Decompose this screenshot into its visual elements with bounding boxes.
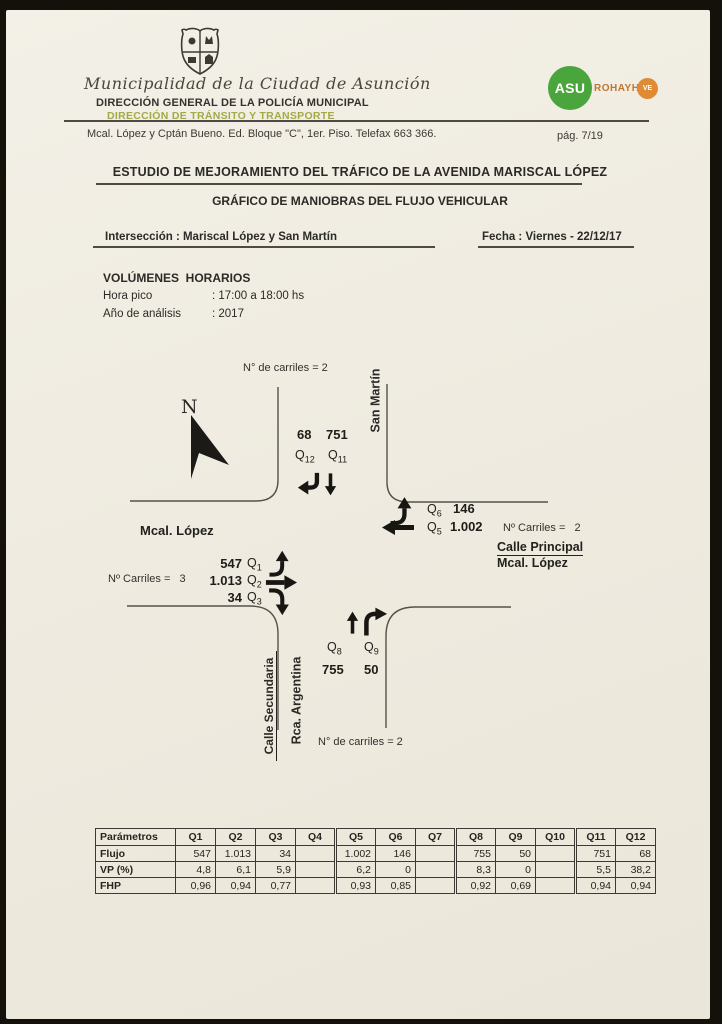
q8-subscript: 8 <box>337 647 342 657</box>
table-row-fhp: FHP 0,96 0,94 0,77 0,93 0,85 0,92 0,69 0… <box>96 878 656 894</box>
q9-letter: Q <box>364 640 374 654</box>
q11-straight-down-arrow-icon <box>322 467 339 501</box>
vp-q11: 5,5 <box>576 862 616 878</box>
col-q10: Q10 <box>536 829 576 846</box>
fhp-q7 <box>416 878 456 894</box>
flujo-q8: 755 <box>456 846 496 862</box>
col-q7: Q7 <box>416 829 456 846</box>
vp-q5: 6,2 <box>336 862 376 878</box>
vp-q2: 6,1 <box>216 862 256 878</box>
flujo-q10 <box>536 846 576 862</box>
q2-label: Q2 <box>247 573 262 590</box>
flujo-q5: 1.002 <box>336 846 376 862</box>
vp-q10 <box>536 862 576 878</box>
vp-q8: 8,3 <box>456 862 496 878</box>
q3-subscript: 3 <box>257 597 262 607</box>
col-q4: Q4 <box>296 829 336 846</box>
q1-value: 547 <box>190 556 242 571</box>
street-right-name: Calle Principal <box>497 540 583 556</box>
lanes-bottom-label: N° de carriles = 2 <box>318 736 403 748</box>
q1-turn-up-arrow-icon <box>267 550 291 577</box>
flujo-label: Flujo <box>96 846 176 862</box>
vp-q9: 0 <box>496 862 536 878</box>
flujo-q3: 34 <box>256 846 296 862</box>
q2-letter: Q <box>247 573 257 587</box>
north-arrow-icon <box>171 413 233 481</box>
fhp-q8: 0,92 <box>456 878 496 894</box>
vp-label: VP (%) <box>96 862 176 878</box>
q5-straight-left-arrow-icon <box>381 519 416 536</box>
col-q6: Q6 <box>376 829 416 846</box>
street-top-label: San Martín <box>368 362 383 440</box>
vp-q7 <box>416 862 456 878</box>
q1-letter: Q <box>247 556 257 570</box>
q9-turn-right-arrow-icon <box>361 606 388 638</box>
q6-letter: Q <box>427 502 437 516</box>
q9-label: Q9 <box>364 640 379 657</box>
col-q2: Q2 <box>216 829 256 846</box>
lanes-top-label: N° de carriles = 2 <box>243 362 328 374</box>
col-q12: Q12 <box>616 829 656 846</box>
q3-value: 34 <box>190 590 242 605</box>
col-parametros: Parámetros <box>96 829 176 846</box>
q11-letter: Q <box>328 448 338 462</box>
q11-subscript: 11 <box>338 455 347 465</box>
lanes-right-label: Nº Carriles = 2 <box>503 522 581 534</box>
q12-turn-left-arrow-icon <box>297 469 323 501</box>
col-q5: Q5 <box>336 829 376 846</box>
fhp-q5: 0,93 <box>336 878 376 894</box>
street-right-name2: Mcal. López <box>497 556 568 570</box>
col-q1: Q1 <box>176 829 216 846</box>
q3-letter: Q <box>247 590 257 604</box>
vp-q4 <box>296 862 336 878</box>
fhp-q3: 0,77 <box>256 878 296 894</box>
col-q8: Q8 <box>456 829 496 846</box>
flujo-q9: 50 <box>496 846 536 862</box>
q6-label: Q6 <box>427 502 442 519</box>
q3-turn-down-arrow-icon <box>266 588 292 616</box>
flujo-q6: 146 <box>376 846 416 862</box>
q5-letter: Q <box>427 520 437 534</box>
q8-straight-up-arrow-icon <box>344 606 361 640</box>
q2-value: 1.013 <box>190 573 242 588</box>
q9-subscript: 9 <box>374 647 379 657</box>
parameters-table: Parámetros Q1 Q2 Q3 Q4 Q5 Q6 Q7 Q8 Q9 Q1… <box>95 828 656 894</box>
q1-subscript: 1 <box>257 563 262 573</box>
fhp-q11: 0,94 <box>576 878 616 894</box>
q12-letter: Q <box>295 448 305 462</box>
street-bottom-name: Rca. Argentina <box>289 647 304 755</box>
flujo-q2: 1.013 <box>216 846 256 862</box>
lanes-left-label: Nº Carriles = 3 <box>108 573 186 585</box>
q6-subscript: 6 <box>437 509 442 519</box>
fhp-q6: 0,85 <box>376 878 416 894</box>
street-left-label: Mcal. López <box>140 523 214 538</box>
table-row-flujo: Flujo 547 1.013 34 1.002 146 755 50 751 … <box>96 846 656 862</box>
q9-value: 50 <box>364 662 378 677</box>
fhp-q4 <box>296 878 336 894</box>
fhp-q9: 0,69 <box>496 878 536 894</box>
fhp-q10 <box>536 878 576 894</box>
flujo-q1: 547 <box>176 846 216 862</box>
q12-label: Q12 <box>295 448 315 465</box>
q1-label: Q1 <box>247 556 262 573</box>
flujo-q12: 68 <box>616 846 656 862</box>
vp-q1: 4,8 <box>176 862 216 878</box>
q3-label: Q3 <box>247 590 262 607</box>
vp-q6: 0 <box>376 862 416 878</box>
flujo-q7 <box>416 846 456 862</box>
q11-value: 751 <box>326 427 348 442</box>
q2-subscript: 2 <box>257 580 262 590</box>
q12-subscript: 12 <box>305 455 315 465</box>
q6-value: 146 <box>453 501 475 516</box>
q8-value: 755 <box>322 662 344 677</box>
vp-q12: 38,2 <box>616 862 656 878</box>
q8-label: Q8 <box>327 640 342 657</box>
vp-q3: 5,9 <box>256 862 296 878</box>
col-q9: Q9 <box>496 829 536 846</box>
col-q11: Q11 <box>576 829 616 846</box>
q8-letter: Q <box>327 640 337 654</box>
q11-label: Q11 <box>328 448 347 465</box>
table-row-vp: VP (%) 4,8 6,1 5,9 6,2 0 8,3 0 5,5 38,2 <box>96 862 656 878</box>
flujo-q4 <box>296 846 336 862</box>
table-header-row: Parámetros Q1 Q2 Q3 Q4 Q5 Q6 Q7 Q8 Q9 Q1… <box>96 829 656 846</box>
fhp-q1: 0,96 <box>176 878 216 894</box>
q5-value: 1.002 <box>450 519 483 534</box>
fhp-q12: 0,94 <box>616 878 656 894</box>
fhp-label: FHP <box>96 878 176 894</box>
q12-value: 68 <box>297 427 311 442</box>
street-bottom-secondary-label: Calle Secundaria <box>261 651 277 761</box>
q5-subscript: 5 <box>437 527 442 537</box>
flujo-q11: 751 <box>576 846 616 862</box>
fhp-q2: 0,94 <box>216 878 256 894</box>
col-q3: Q3 <box>256 829 296 846</box>
q5-label: Q5 <box>427 520 442 537</box>
scanned-page-background: Municipalidad de la Ciudad de Asunción D… <box>0 0 722 1024</box>
